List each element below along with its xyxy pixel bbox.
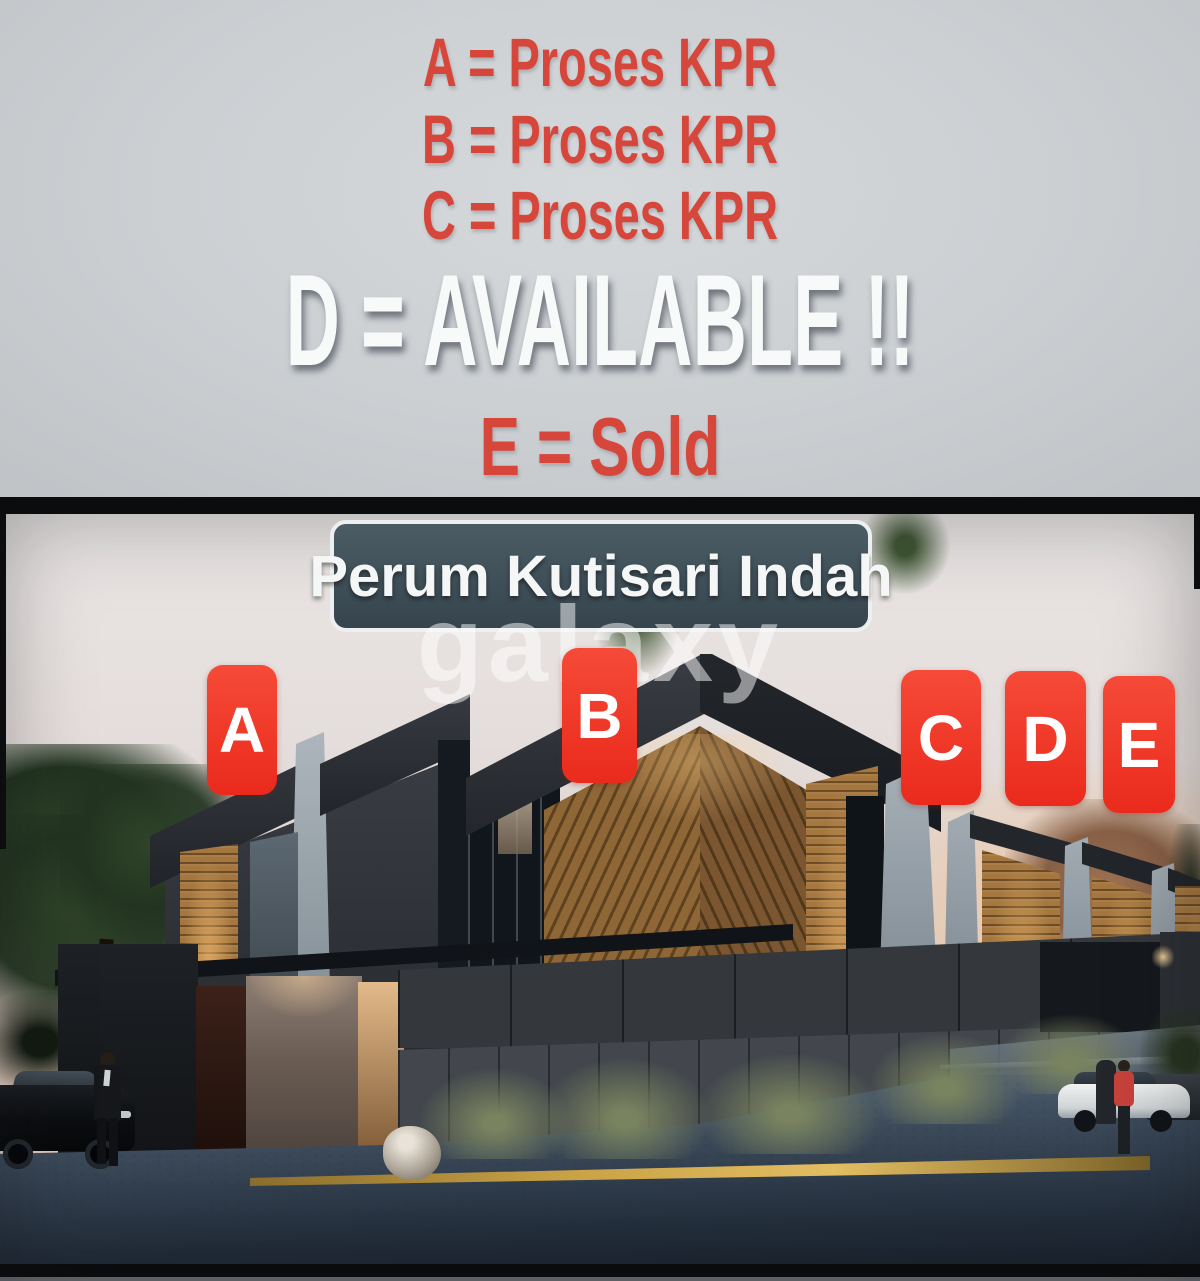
legend-line-b: B = Proses KPR <box>192 105 1008 174</box>
section-divider <box>0 497 1200 514</box>
unit-label-e: E <box>1103 676 1175 813</box>
legend-line-c: C = Proses KPR <box>192 181 1008 250</box>
unit-label-a: A <box>207 665 277 795</box>
garden-rock <box>383 1126 441 1180</box>
person-torso <box>1114 1071 1134 1107</box>
right-edge-strip <box>1194 514 1200 589</box>
legend-line-d-available: D = AVAILABLE !! <box>252 255 948 385</box>
person-legs <box>1118 1106 1130 1154</box>
legend-line-a: A = Proses KPR <box>192 28 1008 97</box>
gate-lamp-glow <box>1152 944 1174 970</box>
white-car-wheel <box>1150 1110 1172 1132</box>
flyer: A = Proses KPR B = Proses KPR C = Proses… <box>0 0 1200 1281</box>
legend-line-e-sold: E = Sold <box>162 405 1038 488</box>
entry-wall-glow <box>250 976 358 1016</box>
bottom-black-bar <box>0 1264 1200 1277</box>
entry-door <box>196 986 246 1154</box>
man-leg <box>97 1118 106 1164</box>
ornamental-grass <box>700 1054 880 1154</box>
person-red-top <box>1112 1060 1136 1160</box>
house-a-door-panel <box>250 832 298 1000</box>
man-leg <box>109 1118 118 1166</box>
unit-label-c: C <box>901 670 981 805</box>
ornamental-grass <box>870 1034 1020 1124</box>
white-car-wheel <box>1074 1110 1096 1132</box>
unit-label-b: B <box>562 648 637 783</box>
bottom-gray-strip <box>0 1277 1200 1281</box>
ornamental-grass <box>540 1059 710 1159</box>
status-legend: A = Proses KPR B = Proses KPR C = Proses… <box>0 0 1200 497</box>
suv-wheel <box>3 1139 33 1169</box>
property-render-photo: Perum Kutisari Indah galaxy A B C D E <box>0 514 1200 1281</box>
unit-label-d: D <box>1005 671 1086 806</box>
man-on-phone <box>86 1052 128 1168</box>
